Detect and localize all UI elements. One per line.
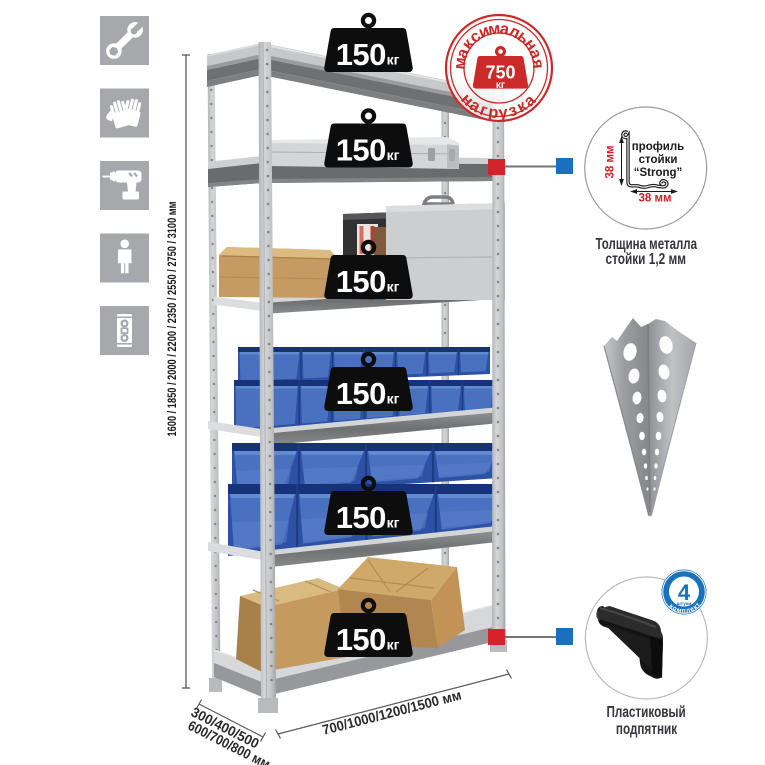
svg-text:я: я xyxy=(528,57,547,69)
svg-text:стойки: стойки xyxy=(639,154,678,166)
svg-text:38 мм: 38 мм xyxy=(638,193,671,205)
svg-text:150: 150 xyxy=(336,37,386,72)
svg-text:кг: кг xyxy=(387,279,400,295)
svg-text:кг: кг xyxy=(387,391,400,407)
svg-text:150: 150 xyxy=(336,376,386,411)
svg-text:150: 150 xyxy=(336,264,386,299)
svg-text:150: 150 xyxy=(336,500,386,535)
svg-text:кг: кг xyxy=(387,147,400,163)
svg-text:профиль: профиль xyxy=(632,141,685,153)
svg-text:Пластиковый: Пластиковый xyxy=(607,704,686,721)
svg-text:подпятник: подпятник xyxy=(616,721,677,738)
svg-text:38 мм: 38 мм xyxy=(605,145,617,178)
svg-text:стойки 1,2 мм: стойки 1,2 мм xyxy=(606,251,687,268)
svg-text:“Strong”: “Strong” xyxy=(634,167,683,179)
svg-text:150: 150 xyxy=(336,622,386,657)
svg-text:кг: кг xyxy=(387,515,400,531)
svg-text:150: 150 xyxy=(336,133,386,168)
svg-text:штуки: штуки xyxy=(677,602,692,607)
svg-text:кг: кг xyxy=(387,52,400,68)
svg-text:1600 / 1850 / 2000 / 2200 / 23: 1600 / 1850 / 2000 / 2200 / 2350 / 2550 … xyxy=(167,202,179,437)
svg-text:кг: кг xyxy=(496,80,505,91)
svg-text:кг: кг xyxy=(387,637,400,653)
